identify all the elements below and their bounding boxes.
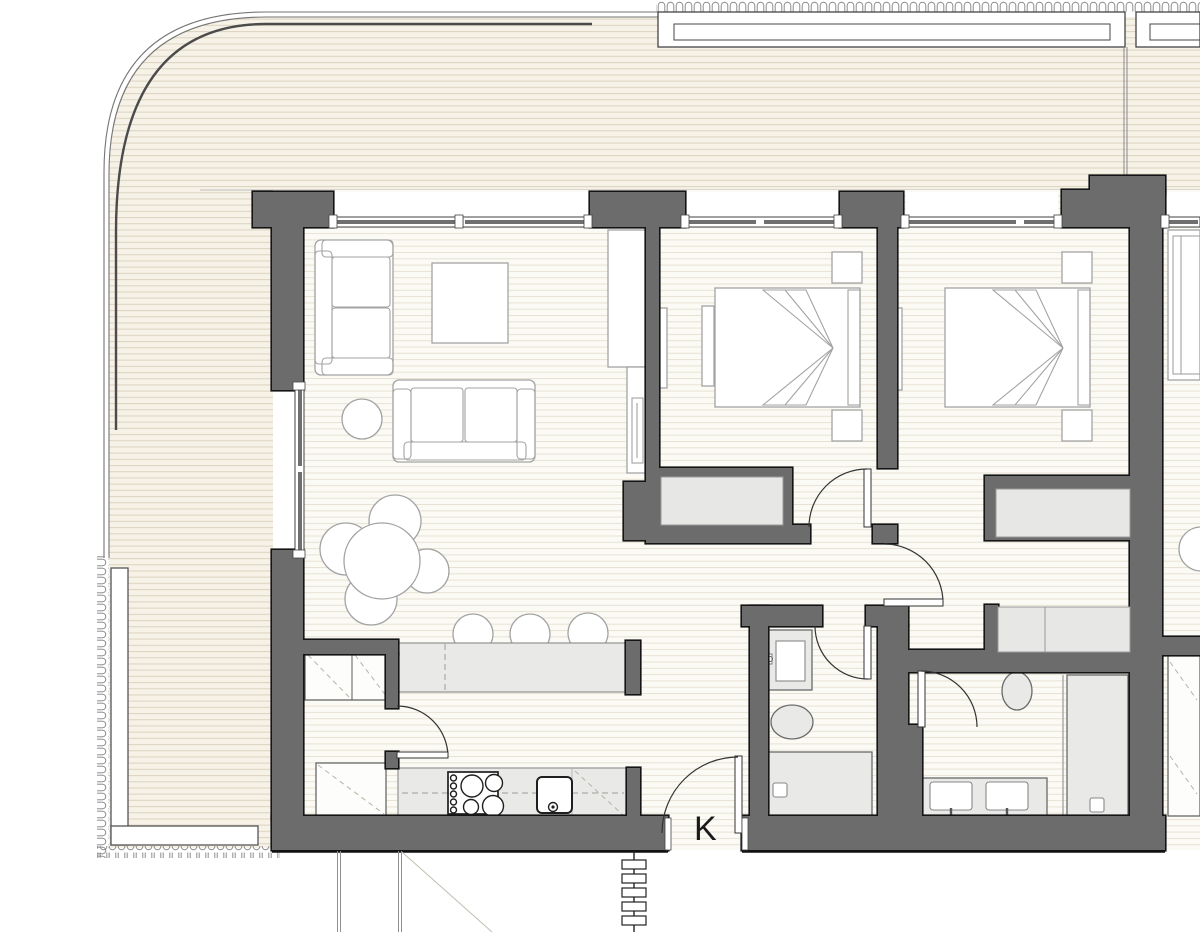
lower-cabinet <box>316 763 386 816</box>
entrance-label: K <box>694 810 717 848</box>
floorplan-image: K <box>0 0 1200 932</box>
pergola-edge-top <box>656 1 1200 13</box>
stove <box>448 772 504 817</box>
neighbor-shower <box>1168 655 1200 816</box>
sofa-loveseat <box>393 380 535 462</box>
planter-top-right <box>1136 12 1200 47</box>
nightstand <box>832 410 862 441</box>
sofa-two-seat <box>315 240 393 375</box>
pergola-edge-left <box>97 556 109 858</box>
bed-double <box>715 288 860 407</box>
planter-top <box>658 12 1125 47</box>
planter-left-vertical <box>111 568 128 845</box>
kitchen-island <box>398 643 626 692</box>
bench-panel <box>702 306 714 386</box>
pergola-edge-bottom <box>97 846 280 858</box>
wardrobe-bedroom2 <box>996 489 1130 537</box>
side-table <box>342 399 382 439</box>
kitchen-counter <box>398 768 626 818</box>
dining-table <box>344 523 420 599</box>
coffee-table <box>432 263 508 343</box>
planter-left-horizontal <box>111 826 258 845</box>
site-marks <box>338 851 647 932</box>
walk-in-shower <box>1063 675 1128 816</box>
sideboard <box>608 230 647 367</box>
nightstand <box>1062 410 1092 441</box>
wardrobe-bedroom1 <box>661 477 783 525</box>
toilet <box>771 705 813 739</box>
corner-cabinet <box>305 652 390 700</box>
toilet <box>1002 672 1032 710</box>
washbasin <box>764 630 812 690</box>
lobby-closet <box>998 607 1130 652</box>
kitchen-sink <box>537 777 572 813</box>
shower-tray <box>768 752 872 816</box>
nightstand <box>1062 252 1092 283</box>
bed-double <box>945 288 1090 407</box>
stair-marker <box>622 851 646 932</box>
nightstand <box>832 252 862 283</box>
